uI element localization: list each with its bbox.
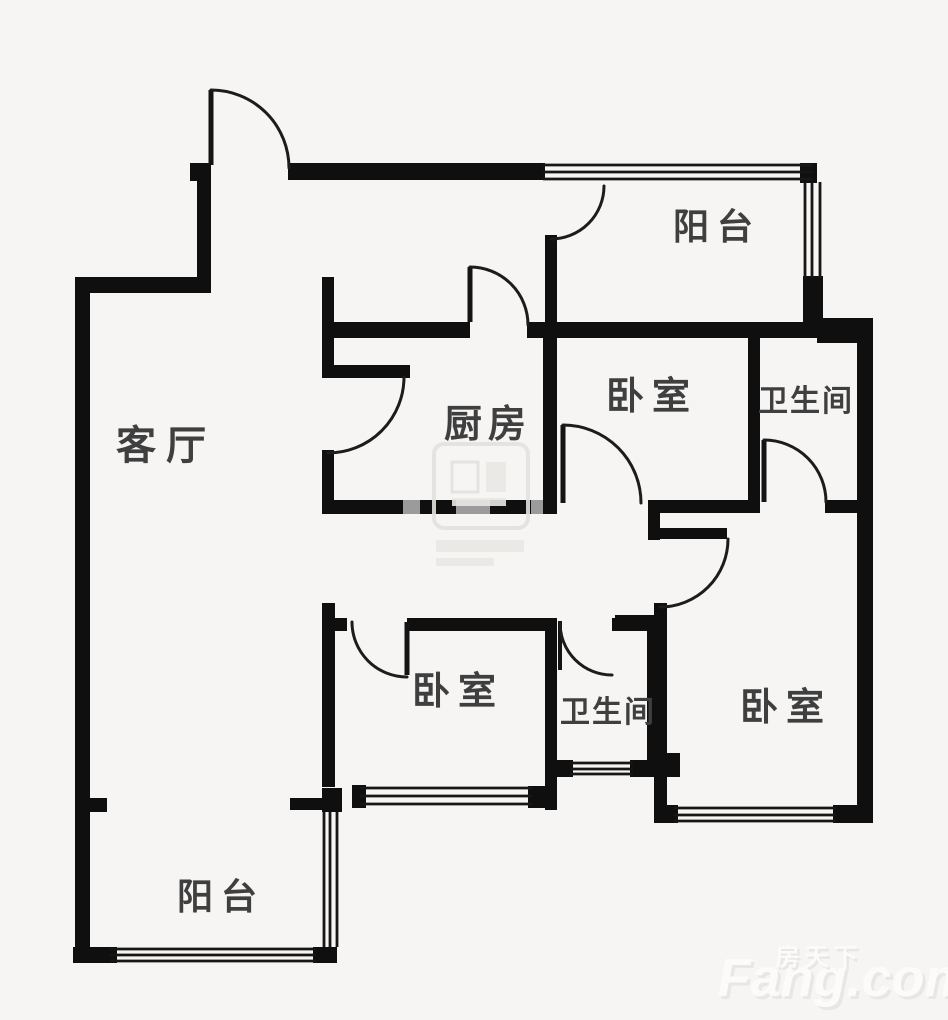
window-balcony-right bbox=[805, 182, 820, 278]
wall-segment-light bbox=[403, 500, 420, 514]
wall-segment bbox=[803, 276, 823, 322]
wall-segment bbox=[313, 947, 337, 963]
wall-segment bbox=[545, 235, 557, 325]
wall-segment bbox=[833, 805, 873, 823]
wall-segment bbox=[648, 500, 660, 540]
window-bathroom-bottom bbox=[570, 763, 633, 774]
room-label-bathroom-top: 卫生间 bbox=[758, 384, 854, 419]
door-bedroom-center bbox=[352, 622, 407, 677]
wall-segment bbox=[322, 500, 557, 514]
wall-segment bbox=[290, 798, 323, 810]
door-bedroom-top bbox=[563, 425, 641, 503]
wall-segment bbox=[75, 277, 90, 814]
door-kitchen-left bbox=[322, 365, 410, 453]
door-kitchen-top bbox=[470, 267, 528, 325]
wall-segment bbox=[825, 500, 857, 513]
wall-segment bbox=[335, 618, 347, 631]
door-entry bbox=[211, 90, 289, 168]
window-balcony-bottom-right bbox=[324, 812, 337, 947]
wall-segment-light bbox=[531, 500, 545, 514]
window-balcony-bottom bbox=[110, 949, 316, 961]
wall-segment bbox=[748, 338, 760, 505]
window-bedroom-center bbox=[360, 788, 532, 804]
window-bedroom-right bbox=[674, 808, 836, 821]
room-label-balcony-top: 阳台 bbox=[673, 207, 761, 248]
room-label-living-room: 客厅 bbox=[116, 423, 216, 469]
wall-segment bbox=[75, 798, 107, 812]
wall-segment bbox=[648, 500, 760, 513]
door-balcony-top bbox=[551, 186, 604, 239]
door-leaf bbox=[660, 528, 727, 539]
wall-segment bbox=[612, 618, 647, 631]
room-label-bedroom-right: 卧室 bbox=[740, 685, 832, 729]
door-bathroom-top bbox=[764, 440, 826, 502]
wall-segment bbox=[528, 786, 557, 808]
floor-plan-page: 客厅 厨房 卧室 卫生间 阳台 卧室 卫生间 卧室 阳台 Fang.com Fa… bbox=[0, 0, 948, 1020]
wall-segment bbox=[545, 322, 873, 338]
wall-segment bbox=[322, 277, 334, 377]
wall-segment bbox=[197, 163, 211, 293]
wall-segment bbox=[75, 277, 211, 293]
wall-segment bbox=[857, 318, 873, 823]
door-bedroom-right bbox=[660, 528, 728, 607]
wall-segment bbox=[543, 338, 557, 514]
wall-segment bbox=[75, 810, 90, 963]
wall-segment bbox=[288, 163, 545, 180]
wall-segment bbox=[407, 618, 557, 631]
wall-segment bbox=[322, 788, 342, 812]
door-bathroom-bottom bbox=[560, 621, 612, 675]
wall-segment bbox=[322, 603, 335, 787]
wall-segment bbox=[545, 618, 557, 810]
wall-segment bbox=[527, 322, 545, 338]
room-label-bedroom-top: 卧室 bbox=[606, 374, 698, 418]
room-label-bedroom-center: 卧室 bbox=[412, 669, 504, 713]
room-label-balcony-bottom: 阳台 bbox=[177, 877, 265, 918]
fang-watermark: Fang.com Fang.com 房天下 房天下 bbox=[717, 943, 948, 1011]
door-leaf bbox=[322, 365, 410, 378]
window-top-balcony bbox=[543, 165, 813, 179]
wall-segment bbox=[322, 322, 470, 338]
floor-plan: 客厅 厨房 卧室 卫生间 阳台 卧室 卫生间 卧室 阳台 Fang.com Fa… bbox=[0, 0, 948, 1020]
room-label-bathroom-bottom: 卫生间 bbox=[560, 695, 656, 730]
watermark-text-cn: 房天下 bbox=[776, 943, 863, 971]
room-label-kitchen: 厨房 bbox=[444, 402, 532, 446]
wall-segment bbox=[630, 760, 657, 777]
